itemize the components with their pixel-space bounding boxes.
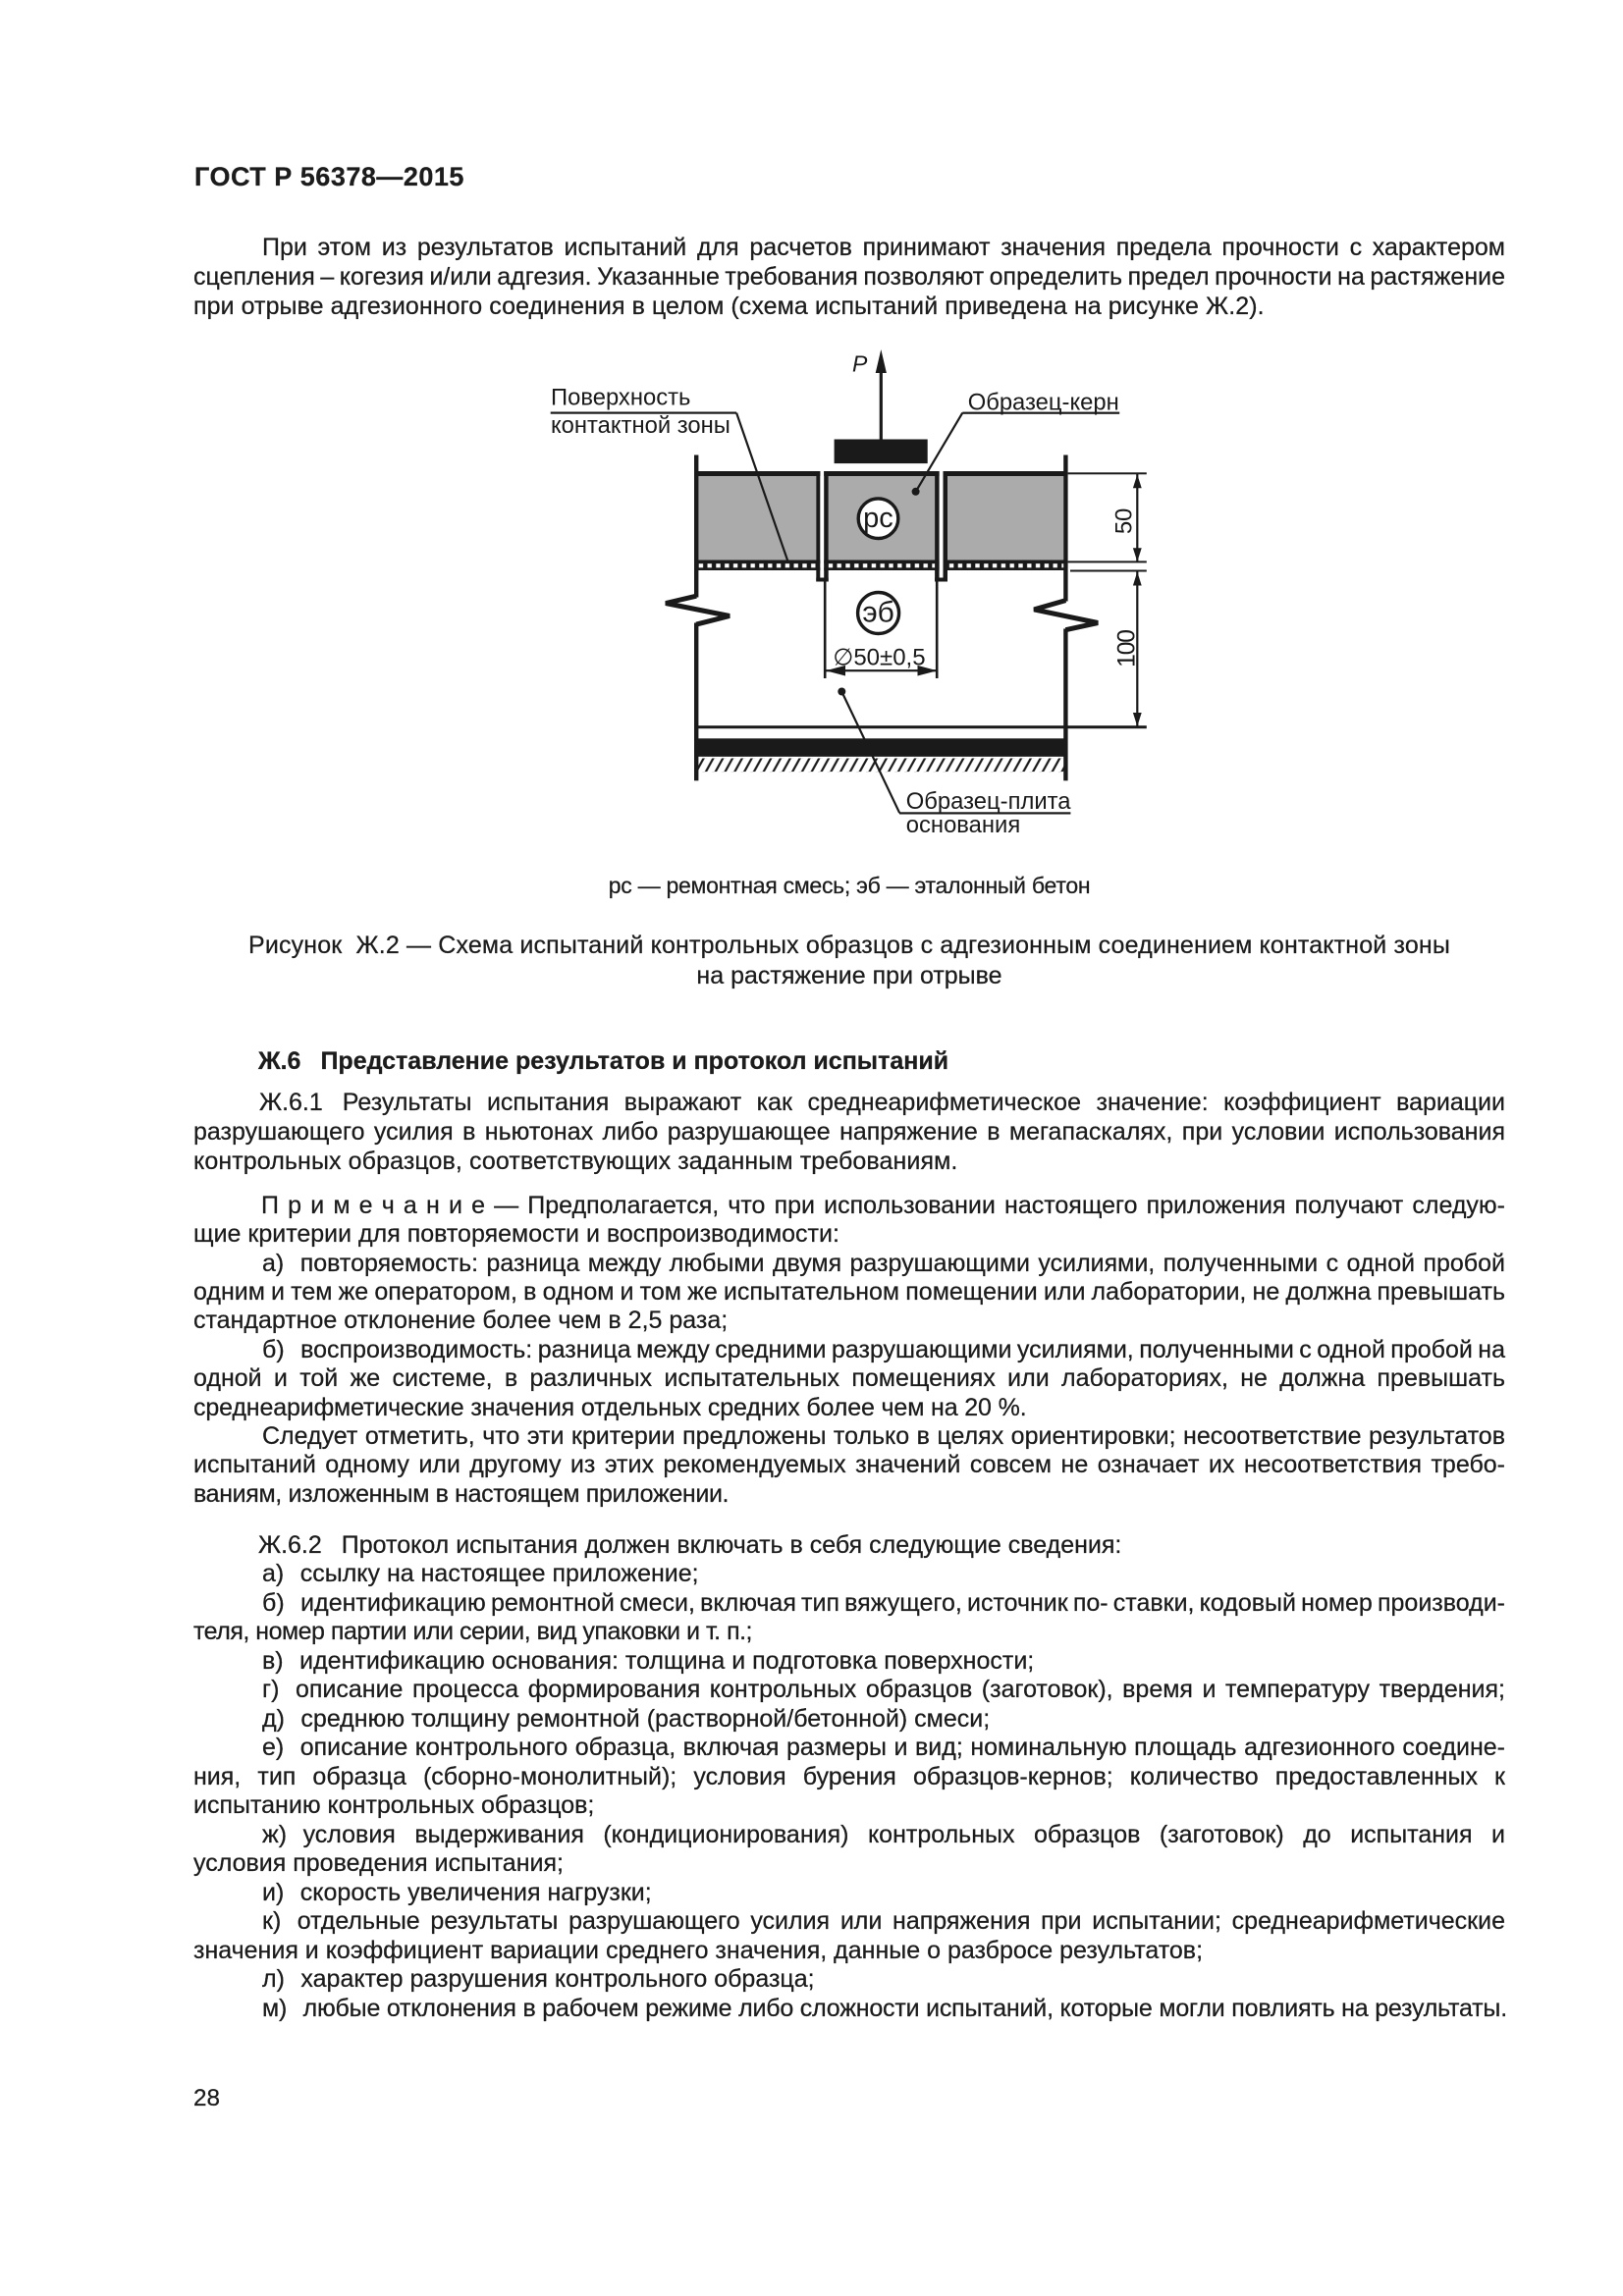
svg-text:50: 50	[1110, 508, 1137, 534]
svg-text:Образец-керн: Образец-керн	[968, 390, 1119, 416]
svg-text:эб: эб	[862, 597, 894, 629]
svg-text:Поверхность: Поверхность	[551, 385, 690, 411]
svg-text:∅50±0,5: ∅50±0,5	[833, 645, 925, 671]
svg-text:100: 100	[1113, 630, 1140, 667]
svg-text:Образец-плита: Образец-плита	[906, 788, 1071, 815]
svg-text:рс: рс	[863, 503, 893, 534]
svg-text:контактной зоны: контактной зоны	[551, 412, 730, 439]
svg-text:основания: основания	[906, 812, 1020, 838]
svg-text:P: P	[852, 351, 868, 377]
